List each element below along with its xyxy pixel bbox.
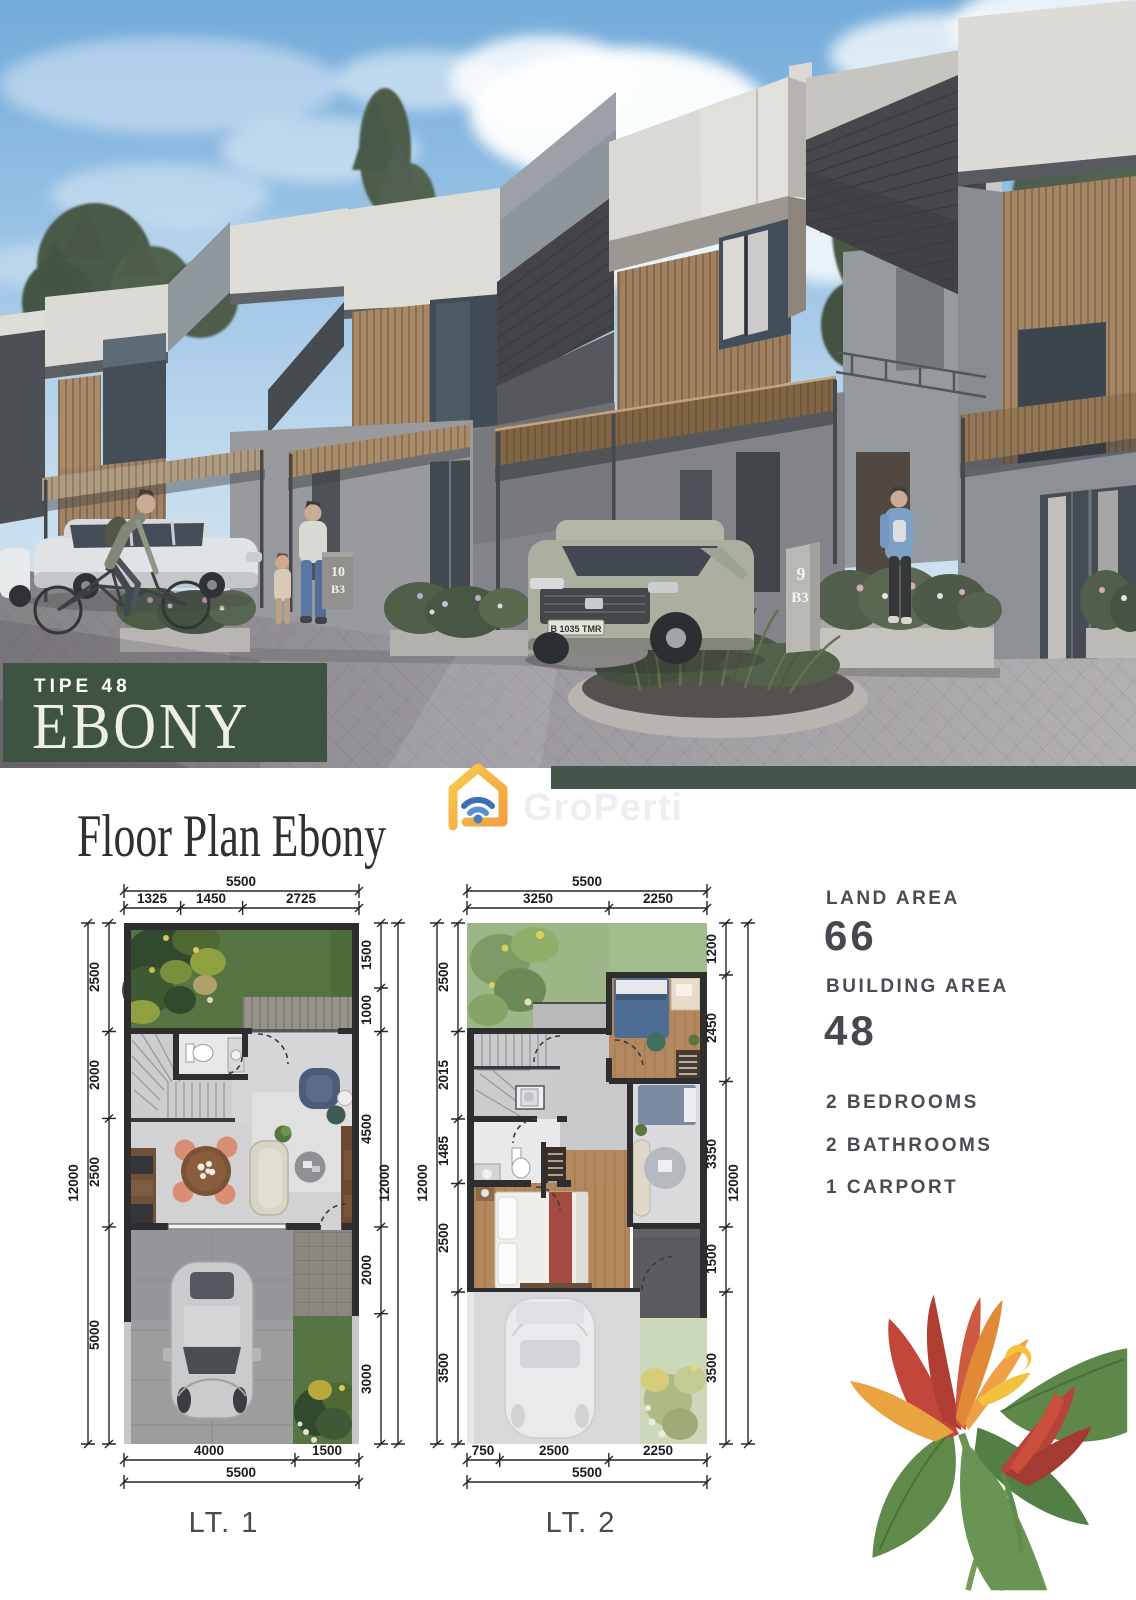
svg-text:1500: 1500 bbox=[312, 1443, 342, 1458]
svg-text:12000: 12000 bbox=[66, 1164, 81, 1202]
svg-text:1000: 1000 bbox=[359, 995, 374, 1025]
svg-text:2000: 2000 bbox=[87, 1060, 102, 1090]
svg-text:1200: 1200 bbox=[704, 934, 719, 964]
svg-text:4000: 4000 bbox=[194, 1443, 224, 1458]
svg-text:2500: 2500 bbox=[87, 1157, 102, 1187]
svg-text:1325: 1325 bbox=[137, 891, 168, 906]
svg-text:3500: 3500 bbox=[704, 1353, 719, 1383]
svg-text:2250: 2250 bbox=[643, 891, 673, 906]
svg-text:5500: 5500 bbox=[572, 874, 602, 889]
svg-text:5500: 5500 bbox=[572, 1465, 602, 1480]
svg-text:2450: 2450 bbox=[704, 1013, 719, 1043]
svg-text:5500: 5500 bbox=[226, 874, 256, 889]
svg-text:1500: 1500 bbox=[359, 940, 374, 970]
svg-text:12000: 12000 bbox=[415, 1164, 430, 1202]
svg-text:2250: 2250 bbox=[643, 1443, 673, 1458]
svg-text:4500: 4500 bbox=[359, 1114, 374, 1144]
svg-text:5000: 5000 bbox=[87, 1320, 102, 1350]
svg-text:12000: 12000 bbox=[726, 1164, 741, 1202]
svg-text:1485: 1485 bbox=[436, 1135, 451, 1166]
svg-text:1450: 1450 bbox=[196, 891, 226, 906]
svg-text:3250: 3250 bbox=[523, 891, 553, 906]
svg-text:1500: 1500 bbox=[704, 1244, 719, 1274]
svg-text:2500: 2500 bbox=[539, 1443, 569, 1458]
svg-text:LT. 1: LT. 1 bbox=[189, 1507, 260, 1539]
svg-text:2500: 2500 bbox=[436, 962, 451, 992]
svg-text:2500: 2500 bbox=[87, 962, 102, 992]
svg-text:3000: 3000 bbox=[359, 1364, 374, 1394]
svg-text:2015: 2015 bbox=[436, 1059, 451, 1090]
svg-text:LT. 2: LT. 2 bbox=[546, 1507, 617, 1539]
svg-text:12000: 12000 bbox=[377, 1164, 392, 1202]
svg-text:5500: 5500 bbox=[226, 1465, 256, 1480]
svg-text:3350: 3350 bbox=[704, 1139, 719, 1169]
svg-text:2725: 2725 bbox=[286, 891, 317, 906]
svg-text:3500: 3500 bbox=[436, 1353, 451, 1383]
svg-text:2500: 2500 bbox=[436, 1223, 451, 1253]
svg-text:2000: 2000 bbox=[359, 1255, 374, 1285]
svg-text:750: 750 bbox=[472, 1443, 495, 1458]
